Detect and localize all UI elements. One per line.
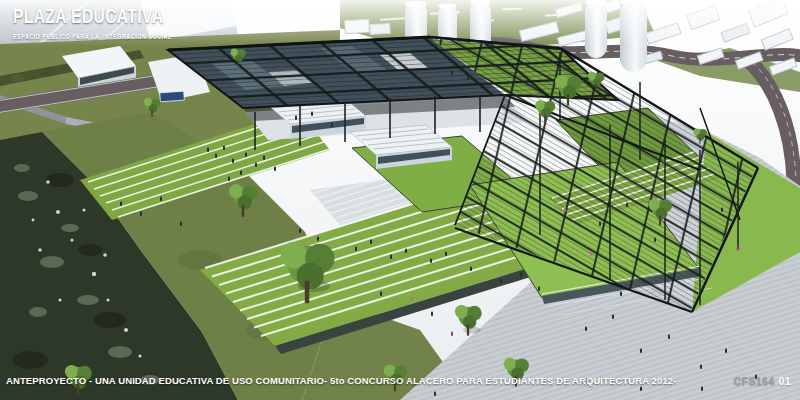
sheet-code: CFS16401 [734,375,791,387]
project-code: CFS164 [734,375,775,387]
render-board: PLAZA EDUCATIVA ESPACIO PUBLICO PARA LA … [0,0,800,400]
caption: ANTEPROYECTO - UNA UNIDAD EDUCATIVA DE U… [6,375,676,386]
title-block: PLAZA EDUCATIVA ESPACIO PUBLICO PARA LA … [13,6,211,42]
page-subtitle: ESPACIO PUBLICO PARA LA INTEGRACION SOCI… [13,34,172,41]
page-title: PLAZA EDUCATIVA [13,6,163,26]
banner-screen [160,91,185,102]
architectural-render [0,0,800,400]
sheet-number: 01 [779,375,791,387]
